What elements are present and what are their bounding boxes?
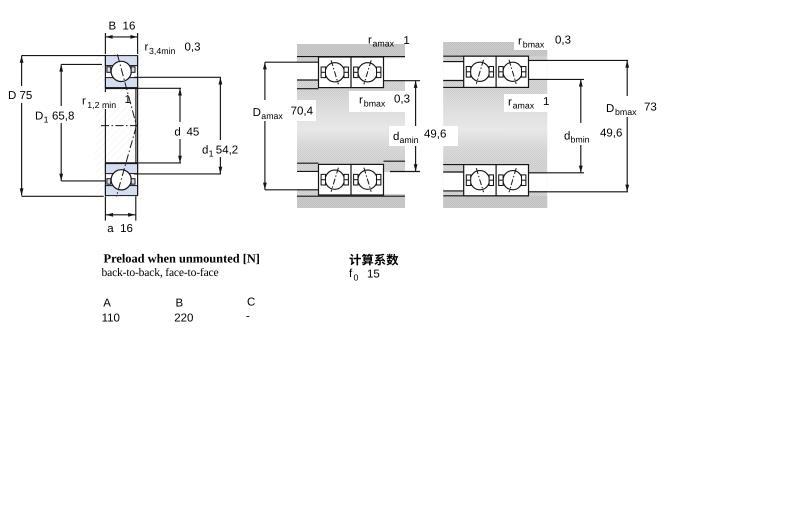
svg-text:0: 0	[354, 273, 359, 283]
svg-text:220: 220	[174, 312, 193, 324]
svg-text:0,3: 0,3	[185, 42, 201, 54]
svg-text:bmax: bmax	[523, 40, 545, 50]
svg-text:0,3: 0,3	[555, 35, 571, 47]
svg-text:amax: amax	[373, 39, 395, 49]
svg-text:45: 45	[187, 127, 200, 139]
svg-text:1: 1	[403, 35, 409, 47]
svg-text:49,6: 49,6	[424, 129, 446, 141]
svg-text:r: r	[508, 97, 512, 109]
svg-text:3,4min: 3,4min	[149, 46, 176, 56]
svg-text:bmax: bmax	[615, 107, 637, 117]
svg-text:-: -	[246, 311, 250, 323]
svg-text:d: d	[564, 131, 570, 143]
svg-text:Preload when unmounted [N]: Preload when unmounted [N]	[104, 252, 260, 266]
svg-text:d: d	[202, 145, 208, 157]
svg-text:70,4: 70,4	[291, 106, 314, 118]
svg-text:1: 1	[125, 94, 131, 106]
svg-text:a 16: a 16	[107, 223, 133, 235]
svg-text:r: r	[82, 96, 86, 108]
svg-text:d: d	[393, 131, 399, 143]
svg-text:r: r	[518, 36, 522, 48]
svg-text:bmax: bmax	[364, 99, 386, 109]
svg-text:54,2: 54,2	[216, 145, 238, 157]
svg-text:110: 110	[102, 312, 120, 324]
svg-text:1: 1	[543, 96, 549, 108]
svg-text:D: D	[8, 90, 16, 102]
svg-text:r: r	[368, 35, 372, 47]
svg-text:r: r	[145, 42, 149, 54]
svg-text:d: d	[174, 127, 180, 139]
svg-text:back-to-back, face-to-face: back-to-back, face-to-face	[102, 266, 219, 279]
svg-text:75: 75	[20, 90, 33, 102]
svg-text:amax: amax	[513, 101, 535, 111]
svg-text:B 16: B 16	[109, 21, 136, 33]
svg-text:73: 73	[644, 102, 657, 114]
svg-text:1: 1	[209, 149, 214, 159]
svg-text:D: D	[253, 107, 261, 119]
svg-text:A: A	[103, 297, 111, 309]
svg-text:D: D	[35, 111, 43, 123]
svg-text:r: r	[359, 95, 363, 107]
svg-text:1: 1	[44, 115, 49, 125]
svg-text:15: 15	[367, 269, 380, 281]
svg-text:49,6: 49,6	[600, 128, 622, 140]
svg-text:65,8: 65,8	[52, 111, 74, 123]
svg-text:B: B	[176, 297, 184, 309]
svg-text:amax: amax	[261, 111, 283, 121]
svg-text:0,3: 0,3	[394, 94, 410, 106]
svg-text:1,2 min: 1,2 min	[87, 100, 116, 110]
svg-text:C: C	[247, 296, 255, 308]
svg-text:amin: amin	[400, 135, 419, 145]
svg-text:D: D	[606, 103, 614, 115]
svg-text:bmin: bmin	[571, 135, 590, 145]
